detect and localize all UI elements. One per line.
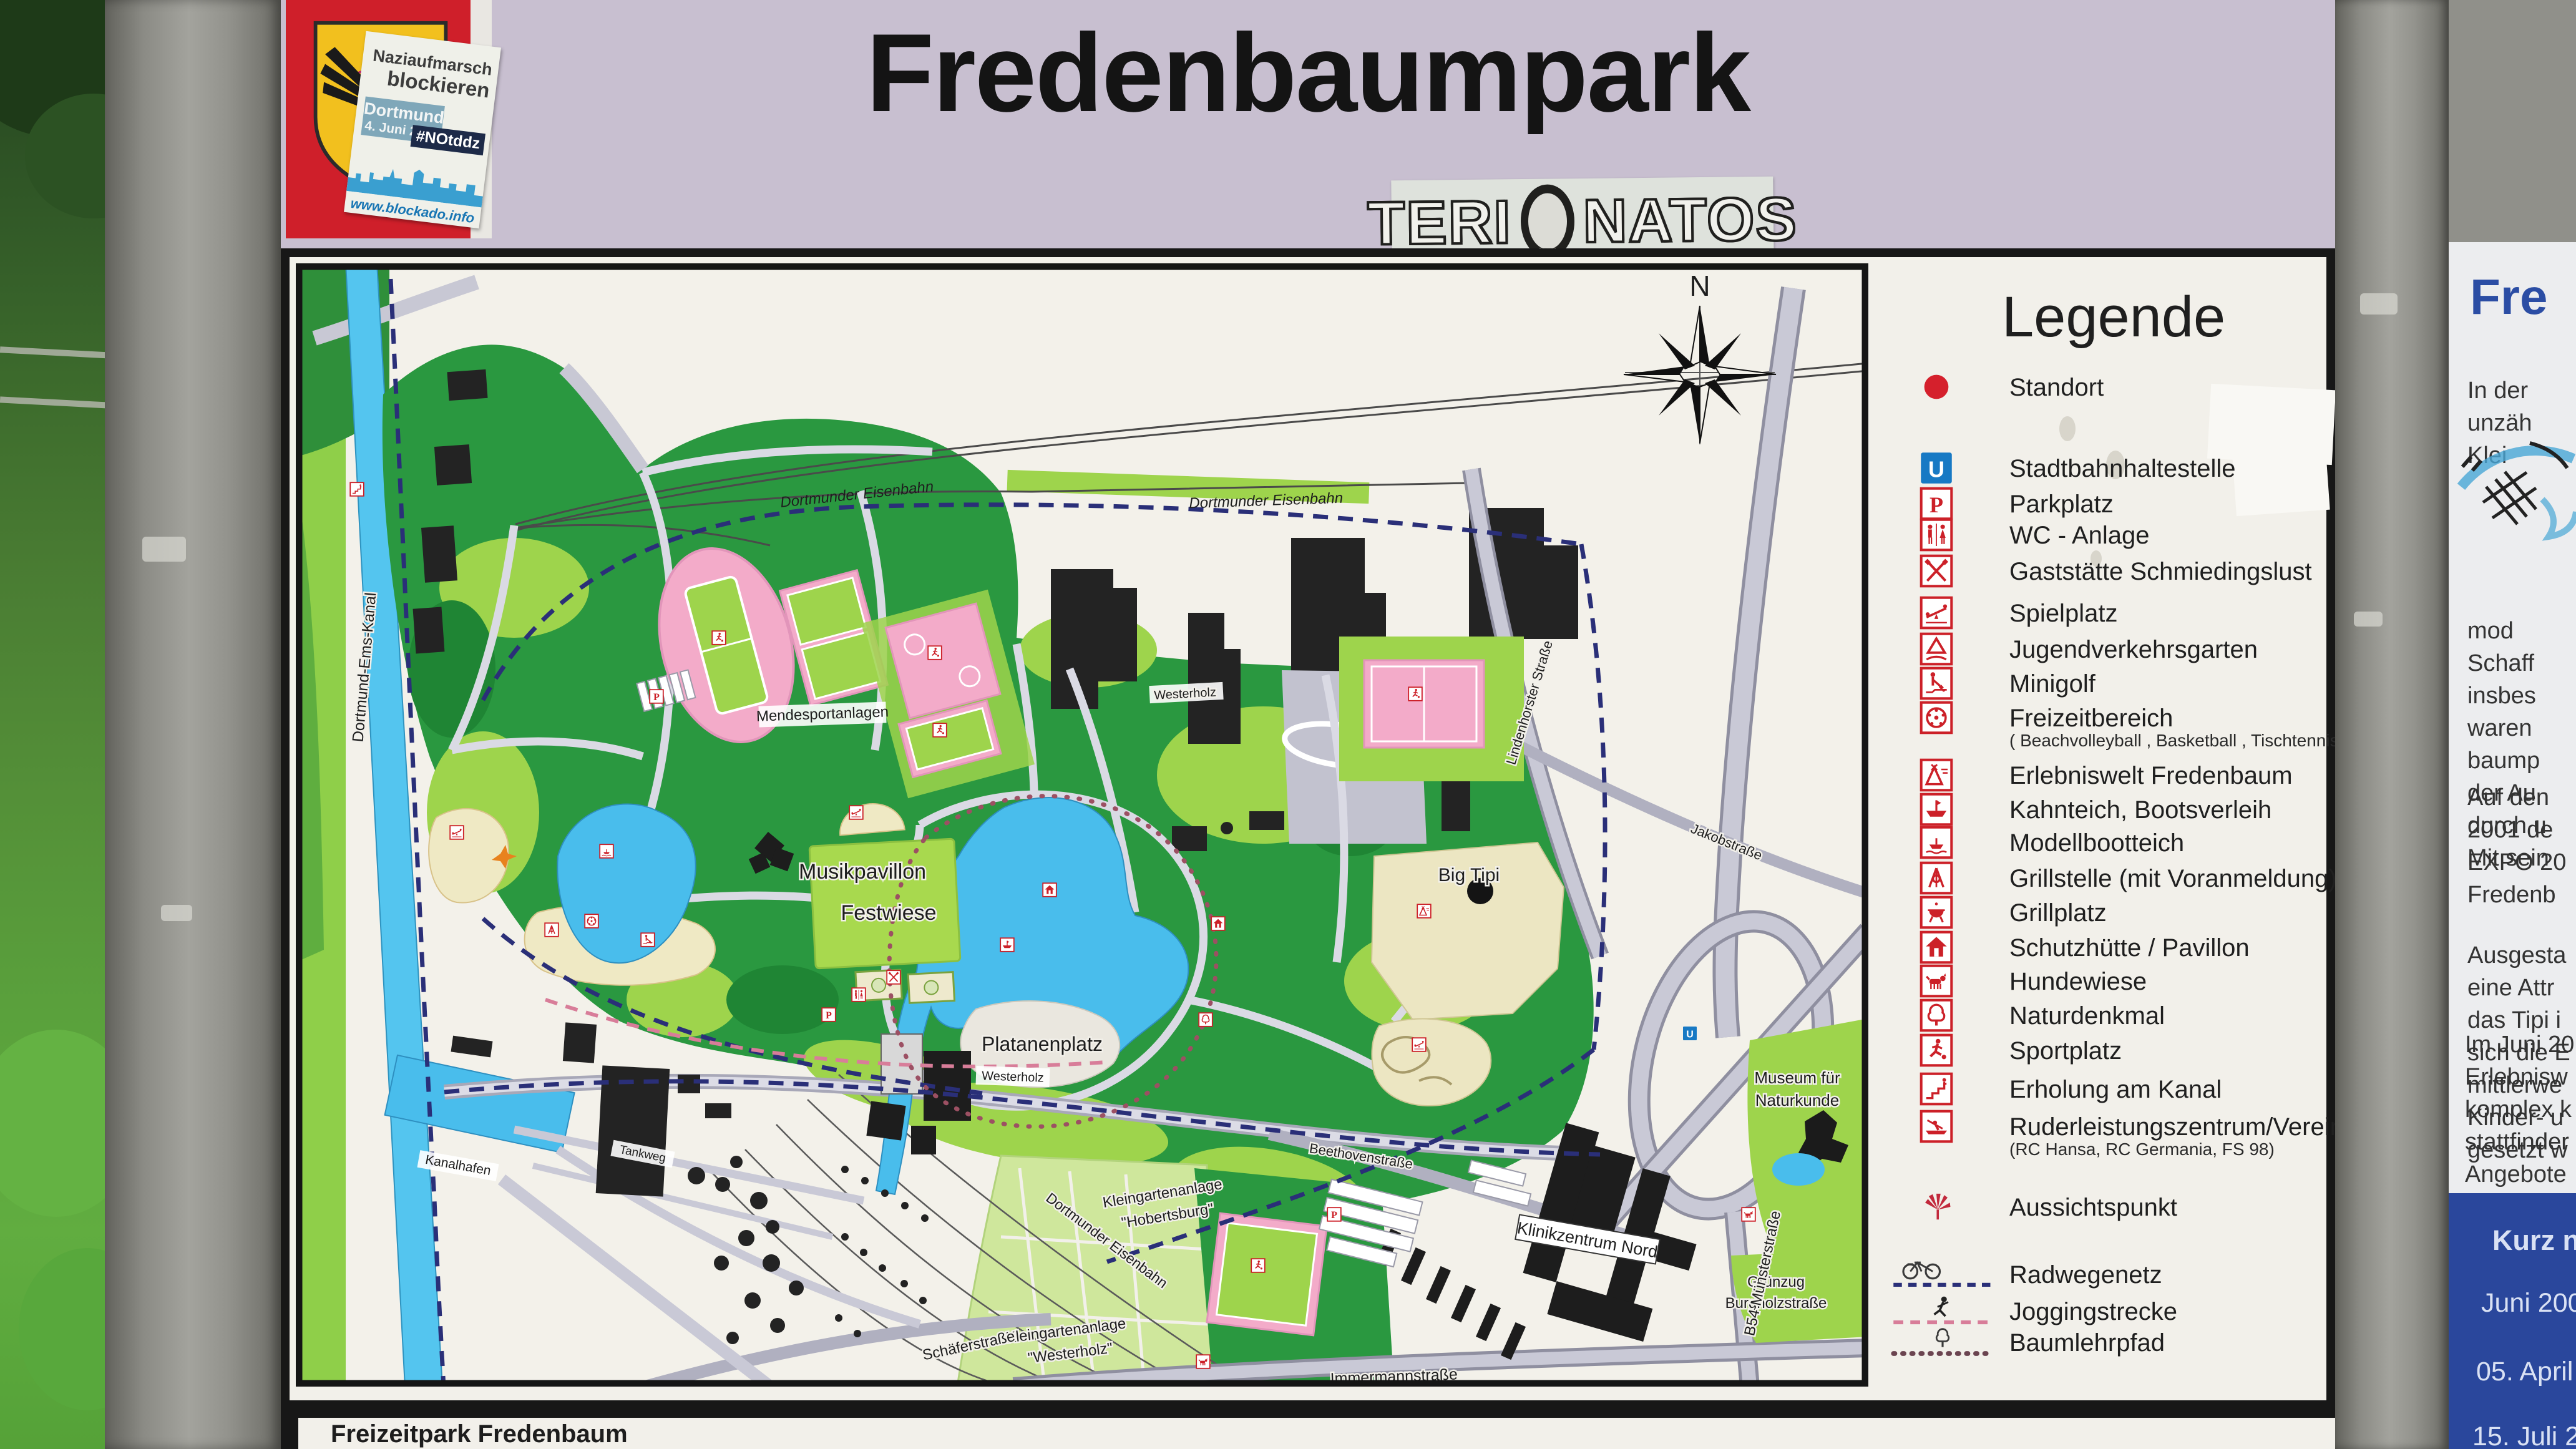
parking-icon (1327, 1207, 1341, 1221)
model-boat-icon (600, 844, 613, 858)
right-pole (2335, 0, 2449, 1449)
sports-icon (933, 723, 947, 737)
sports-icon (1251, 1259, 1265, 1272)
legend-item-naturdenkmal: Naturdenkmal (1885, 1000, 2326, 1035)
legend-item-baumlehrpfad: Baumlehrpfad (1885, 1327, 2326, 1362)
minigolf-icon (641, 933, 655, 947)
map-label: Musikpavillon (799, 860, 926, 884)
sports-icon (928, 646, 942, 660)
tipi-icon (1920, 758, 1953, 792)
leisure-ball-icon (585, 914, 598, 928)
text-paragraph: Auf den 2001 de EXPO 20 Fredenb (2467, 781, 2566, 911)
legend-item-wc: WC - Anlage (1885, 519, 2326, 554)
graffiti-text-left: TERI (1367, 187, 1512, 258)
parking-icon (1920, 487, 1953, 520)
legend-item-grillplatz: Grillplatz (1885, 897, 2326, 932)
legend-item-standort: Standort (1885, 371, 2326, 406)
second-sign: Fre In der unzäh Klei mod Schaff insbes … (2449, 0, 2576, 1449)
traffic-garden-icon (1920, 632, 1953, 666)
map-label: Burgholzstraße (1725, 1295, 1827, 1312)
map-caption: Freizeitpark Fredenbaum (331, 1420, 628, 1448)
standort-dot-icon (1920, 370, 1953, 404)
adventure-play-area (1372, 1019, 1491, 1106)
canal-recreation-icon (350, 482, 364, 496)
sports-field (1364, 660, 1484, 748)
dog-meadow-icon (1742, 1207, 1755, 1221)
natural-monument-icon (1199, 1013, 1212, 1027)
legend-item-sportplatz: Sportplatz (1885, 1035, 2326, 1070)
legend-title: Legende (2002, 285, 2225, 350)
legend-item-radwegenetz: Radwegenetz (1885, 1259, 2326, 1294)
stadtbahn-u-icon (1920, 451, 1953, 485)
fence-rail (0, 346, 112, 358)
map-label: Naturkunde (1755, 1091, 1839, 1110)
legend-item-kahnteich: Kahnteich, Bootsverleih (1885, 794, 2326, 829)
sports-field (1207, 1213, 1327, 1335)
shelter-icon (1211, 917, 1225, 930)
notice-entry: Juni 2005 - (2481, 1288, 2576, 1319)
playground-icon (1412, 1038, 1426, 1051)
legend-item-ruderzentrum: Ruderleistungszentrum/Vereine (RC Hansa,… (1885, 1111, 2326, 1146)
legend-item-erholung-kanal: Erholung am Kanal (1885, 1073, 2326, 1108)
playground-icon (450, 826, 464, 839)
legend-item-hundewiese: Hundewiese (1885, 965, 2326, 1000)
text-paragraph: Im Juni 20 Erlebnisw komplex k stattfind… (2465, 1028, 2574, 1191)
wc-icon (1920, 518, 1953, 552)
dog-meadow-icon (1196, 1355, 1210, 1368)
second-sign-title: Fre (2470, 268, 2548, 326)
legend-item-aussichtspunkt: Aussichtspunkt (1885, 1191, 2326, 1226)
notice-box: Kurz notier Juni 2005 - 05. April 20 15.… (2449, 1193, 2576, 1449)
legend-item-freizeitbereich: Freizeitbereich ( Beachvolleyball , Bask… (1885, 702, 2326, 737)
canal-recreation-icon (1920, 1072, 1953, 1106)
notice-title: Kurz notier (2492, 1224, 2576, 1257)
legend-item-modellbootteich: Modellbootteich (1885, 827, 2326, 862)
campfire-icon (1920, 861, 1953, 895)
photo-of-park-sign: Naziaufmarsch blockieren Dortmund 4. Jun… (0, 0, 2576, 1449)
shelter-icon (1920, 930, 1953, 964)
stadtbahn-station-icon (1683, 1027, 1697, 1040)
runner-icon (1890, 1294, 1996, 1328)
restaurant-icon (887, 970, 900, 984)
boat-rental-icon (1000, 938, 1014, 952)
tipi-icon (1417, 904, 1431, 918)
graffiti-text-right: NATOS (1583, 183, 1798, 256)
legend-item-minigolf: Minigolf (1885, 668, 2326, 703)
map-label: Westerholz (982, 1069, 1044, 1085)
minigolf-icon (1920, 666, 1953, 700)
legend-item-jugendverkehrsgarten: Jugendverkehrsgarten (1885, 633, 2326, 668)
playground-icon (1920, 596, 1953, 630)
sports-icon (1408, 687, 1422, 701)
parking-icon (650, 690, 663, 703)
boat-rental-icon (1920, 793, 1953, 826)
wc-icon (852, 988, 866, 1002)
grill-icon (545, 923, 559, 937)
legend-panel: Legende Standort Stadtbahnhaltestelle (1885, 257, 2326, 1400)
caption-strip: Freizeitpark Fredenbaum (298, 1418, 2335, 1449)
graffiti-scribble (2449, 387, 2576, 574)
notice-entry: 05. April 20 (2476, 1357, 2576, 1387)
shelter-icon (1043, 883, 1056, 897)
notice-entry: 15. Juli 2004 (2472, 1422, 2576, 1449)
graffiti-badge: 2011 (1520, 184, 1574, 258)
map-label: Museum für (1754, 1068, 1840, 1087)
sign-title: Fredenbaumpark (281, 9, 2335, 137)
park-map: Dortmund-Ems-Kanal Dortmunder Eisenbahn … (296, 263, 1868, 1387)
model-boat-icon (1920, 826, 1953, 859)
leisure-ball-icon (1920, 701, 1953, 734)
map-label: Platanenplatz (982, 1033, 1103, 1055)
grill-icon (1920, 895, 1953, 929)
legend-item-grillstelle: Grillstelle (mit Voranmeldung) (1885, 862, 2326, 897)
legend-item-spielplatz: Spielplatz (1885, 597, 2326, 632)
map-panel: Dortmund-Ems-Kanal Dortmunder Eisenbahn … (281, 248, 2335, 1449)
museum-pond (1772, 1153, 1825, 1186)
fence-rail (0, 396, 109, 408)
map-label: Big Tipi (1438, 865, 1500, 885)
parking-icon (822, 1008, 836, 1022)
compass-north-label: N (1689, 270, 1710, 302)
sports-icon (712, 631, 726, 645)
viewpoint-icon (1920, 1190, 1953, 1224)
left-pole (105, 0, 281, 1449)
rowing-icon (1920, 1110, 1953, 1143)
map-label: Festwiese (841, 901, 936, 925)
sports-icon (1920, 1033, 1953, 1067)
legend-item-schutzhuette: Schutzhütte / Pavillon (1885, 932, 2326, 967)
dog-meadow-icon (1920, 964, 1953, 998)
restaurant-icon (1920, 554, 1953, 588)
playground-icon (849, 806, 863, 819)
legend-item-stadtbahn: Stadtbahnhaltestelle (1885, 452, 2326, 487)
bicycle-icon (1890, 1257, 1996, 1291)
park-information-sign: Naziaufmarsch blockieren Dortmund 4. Jun… (281, 0, 2335, 1449)
natural-monument-icon (1920, 998, 1953, 1032)
legend-item-erlebniswelt: Erlebniswelt Fredenbaum (1885, 759, 2326, 794)
sign-header: Naziaufmarsch blockieren Dortmund 4. Jun… (281, 0, 2335, 248)
tree-trail-icon (1890, 1325, 1996, 1359)
legend-item-gaststaette: Gaststätte Schmiedingslust (1885, 555, 2326, 590)
